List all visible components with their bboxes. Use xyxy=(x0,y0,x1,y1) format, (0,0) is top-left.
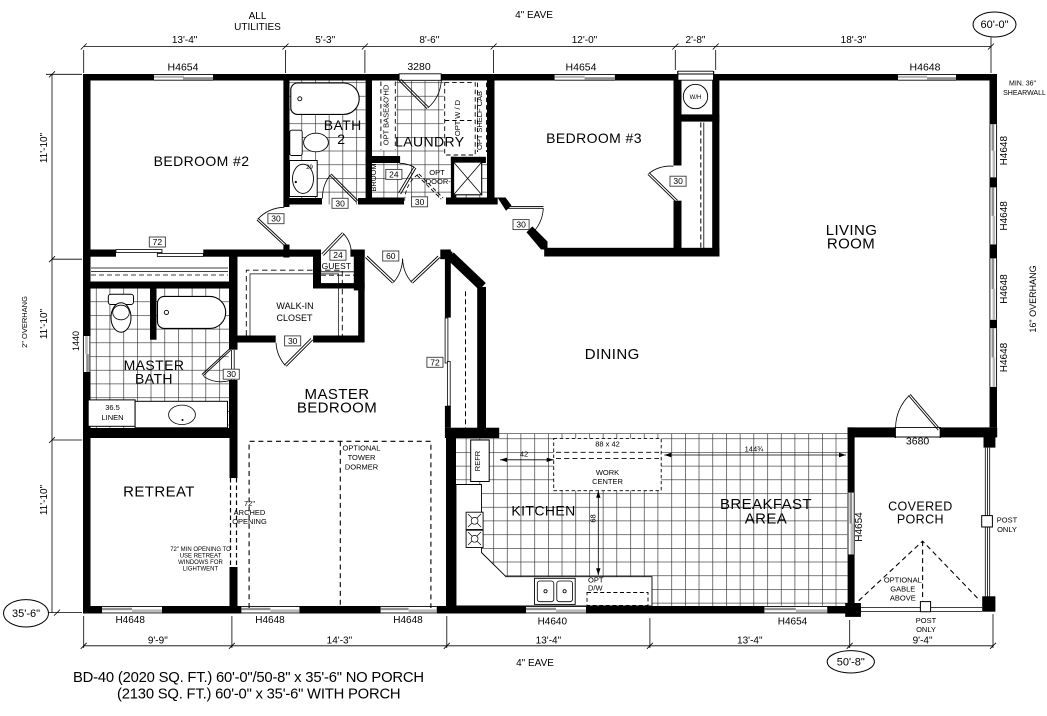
svg-text:OPTIONAL: OPTIONAL xyxy=(884,576,922,585)
svg-text:35'-6": 35'-6" xyxy=(12,608,40,620)
svg-text:24: 24 xyxy=(389,169,399,179)
svg-text:4" EAVE: 4" EAVE xyxy=(516,658,554,669)
svg-text:11'-10": 11'-10" xyxy=(39,484,50,515)
svg-text:H4654: H4654 xyxy=(778,617,808,628)
svg-text:68: 68 xyxy=(589,514,598,522)
svg-text:3280: 3280 xyxy=(407,61,431,73)
svg-text:UTILITIES: UTILITIES xyxy=(234,22,281,33)
svg-text:MIN. 36": MIN. 36" xyxy=(1009,81,1037,88)
svg-text:29: 29 xyxy=(306,165,313,171)
svg-text:(2130 SQ. FT.) 60'-0" x 35'-6": (2130 SQ. FT.) 60'-0" x 35'-6" WITH PORC… xyxy=(117,687,400,703)
svg-text:H4654: H4654 xyxy=(854,512,865,542)
svg-text:5'-3": 5'-3" xyxy=(315,35,335,46)
svg-text:CENTER: CENTER xyxy=(592,477,623,486)
svg-text:H4654: H4654 xyxy=(168,62,199,74)
svg-text:H4640: H4640 xyxy=(538,617,568,628)
svg-text:RETREAT: RETREAT xyxy=(123,484,195,501)
svg-text:8'-6": 8'-6" xyxy=(419,35,439,46)
svg-text:BEDROOM: BEDROOM xyxy=(297,400,377,417)
svg-text:2: 2 xyxy=(337,131,345,147)
svg-text:60: 60 xyxy=(386,251,396,261)
svg-text:30: 30 xyxy=(516,220,526,230)
svg-text:GABLE: GABLE xyxy=(890,585,915,594)
svg-text:1440: 1440 xyxy=(71,331,81,351)
svg-text:W/H: W/H xyxy=(690,95,702,101)
svg-text:DORMER: DORMER xyxy=(345,463,379,472)
svg-text:30: 30 xyxy=(415,197,425,207)
svg-text:ARCHED: ARCHED xyxy=(234,508,266,517)
svg-text:72: 72 xyxy=(153,237,163,247)
svg-text:-DOOR-: -DOOR- xyxy=(423,177,451,186)
svg-text:30: 30 xyxy=(673,176,683,186)
svg-text:9'-9": 9'-9" xyxy=(148,636,168,647)
svg-text:ROOM: ROOM xyxy=(827,236,875,253)
svg-text:TOWER: TOWER xyxy=(348,453,376,462)
svg-text:ONLY: ONLY xyxy=(916,625,936,634)
svg-text:H4648: H4648 xyxy=(999,201,1010,231)
svg-text:36.5: 36.5 xyxy=(105,403,120,412)
svg-text:30: 30 xyxy=(227,369,237,379)
svg-text:BEDROOM #2: BEDROOM #2 xyxy=(154,153,250,169)
svg-text:H4648: H4648 xyxy=(393,615,423,626)
svg-text:42: 42 xyxy=(520,450,528,459)
svg-text:LIGHTWENT: LIGHTWENT xyxy=(183,567,219,573)
svg-text:BROOM: BROOM xyxy=(369,163,378,191)
svg-text:H4648: H4648 xyxy=(255,615,285,626)
svg-text:13'-4": 13'-4" xyxy=(172,35,198,46)
svg-text:WORK: WORK xyxy=(596,468,619,477)
svg-text:H4654: H4654 xyxy=(566,62,597,74)
svg-text:BATH: BATH xyxy=(135,371,173,387)
svg-text:60'-0": 60'-0" xyxy=(980,19,1008,31)
svg-text:BEDROOM #3: BEDROOM #3 xyxy=(546,130,642,146)
svg-text:ONLY: ONLY xyxy=(997,525,1017,534)
svg-text:OPT BASE&O'HD: OPT BASE&O'HD xyxy=(382,84,391,145)
svg-text:H4648: H4648 xyxy=(999,274,1010,304)
svg-text:30: 30 xyxy=(335,198,345,208)
svg-text:14'-3": 14'-3" xyxy=(327,636,353,647)
svg-text:H4648: H4648 xyxy=(115,615,145,626)
svg-text:3680: 3680 xyxy=(906,436,930,448)
svg-text:12'-0": 12'-0" xyxy=(572,35,598,46)
svg-text:18'-3": 18'-3" xyxy=(841,35,867,46)
svg-text:D/W: D/W xyxy=(588,584,604,593)
svg-text:24: 24 xyxy=(333,250,343,260)
svg-text:50'-8": 50'-8" xyxy=(837,657,865,669)
svg-text:72": 72" xyxy=(244,499,255,508)
svg-text:POST: POST xyxy=(997,516,1018,525)
svg-text:2" OVERHANG: 2" OVERHANG xyxy=(20,296,29,348)
svg-text:4" EAVE: 4" EAVE xyxy=(515,10,553,21)
svg-text:WINDOWS FOR: WINDOWS FOR xyxy=(178,560,223,566)
svg-text:USE RETREAT: USE RETREAT xyxy=(180,554,222,560)
svg-text:KITCHEN: KITCHEN xyxy=(511,503,575,519)
svg-text:30: 30 xyxy=(288,336,298,346)
svg-text:LAUNDRY: LAUNDRY xyxy=(395,134,465,150)
svg-text:2'-8": 2'-8" xyxy=(686,35,706,46)
svg-text:13'-4": 13'-4" xyxy=(536,636,562,647)
svg-text:11'-10": 11'-10" xyxy=(39,308,50,339)
svg-text:13'-4": 13'-4" xyxy=(737,636,763,647)
svg-text:16" OVERHANG: 16" OVERHANG xyxy=(1028,265,1038,332)
svg-text:11'-10": 11'-10" xyxy=(39,132,50,163)
svg-text:BD-40 (2020 SQ. FT.) 60'-0"/50: BD-40 (2020 SQ. FT.) 60'-0"/50-8" x 35'-… xyxy=(73,670,424,686)
svg-text:ALL: ALL xyxy=(249,11,267,22)
svg-text:COVERED: COVERED xyxy=(888,500,953,514)
svg-text:DINING: DINING xyxy=(585,346,640,363)
svg-text:H4648: H4648 xyxy=(999,136,1010,166)
svg-text:REFR: REFR xyxy=(473,450,482,471)
svg-text:30: 30 xyxy=(271,214,281,224)
svg-text:H4648: H4648 xyxy=(910,62,941,74)
svg-text:ABOVE: ABOVE xyxy=(890,594,916,603)
svg-text:GUEST: GUEST xyxy=(322,261,351,271)
svg-text:OPTIONAL: OPTIONAL xyxy=(343,444,381,453)
svg-text:OPT: OPT xyxy=(429,168,445,177)
svg-text:72" MIN OPENING TO: 72" MIN OPENING TO xyxy=(170,547,231,553)
svg-text:H4648: H4648 xyxy=(999,342,1010,372)
svg-text:PORCH: PORCH xyxy=(897,513,944,527)
svg-text:LINEN: LINEN xyxy=(101,413,123,422)
svg-text:72: 72 xyxy=(430,357,440,367)
svg-text:OPT SHELF CAB: OPT SHELF CAB xyxy=(475,91,484,150)
svg-text:SHEARWALL: SHEARWALL xyxy=(1003,90,1046,97)
svg-text:9'-4": 9'-4" xyxy=(913,636,933,647)
svg-text:AREA: AREA xyxy=(745,511,787,528)
svg-text:OPT W / D: OPT W / D xyxy=(453,99,462,136)
svg-text:OPENING: OPENING xyxy=(232,517,267,526)
svg-text:88 x 42: 88 x 42 xyxy=(595,440,620,449)
svg-text:POST: POST xyxy=(916,616,937,625)
svg-text:WALK-IN: WALK-IN xyxy=(276,301,313,311)
svg-text:CLOSET: CLOSET xyxy=(276,313,313,323)
svg-text:144¾: 144¾ xyxy=(745,445,765,454)
